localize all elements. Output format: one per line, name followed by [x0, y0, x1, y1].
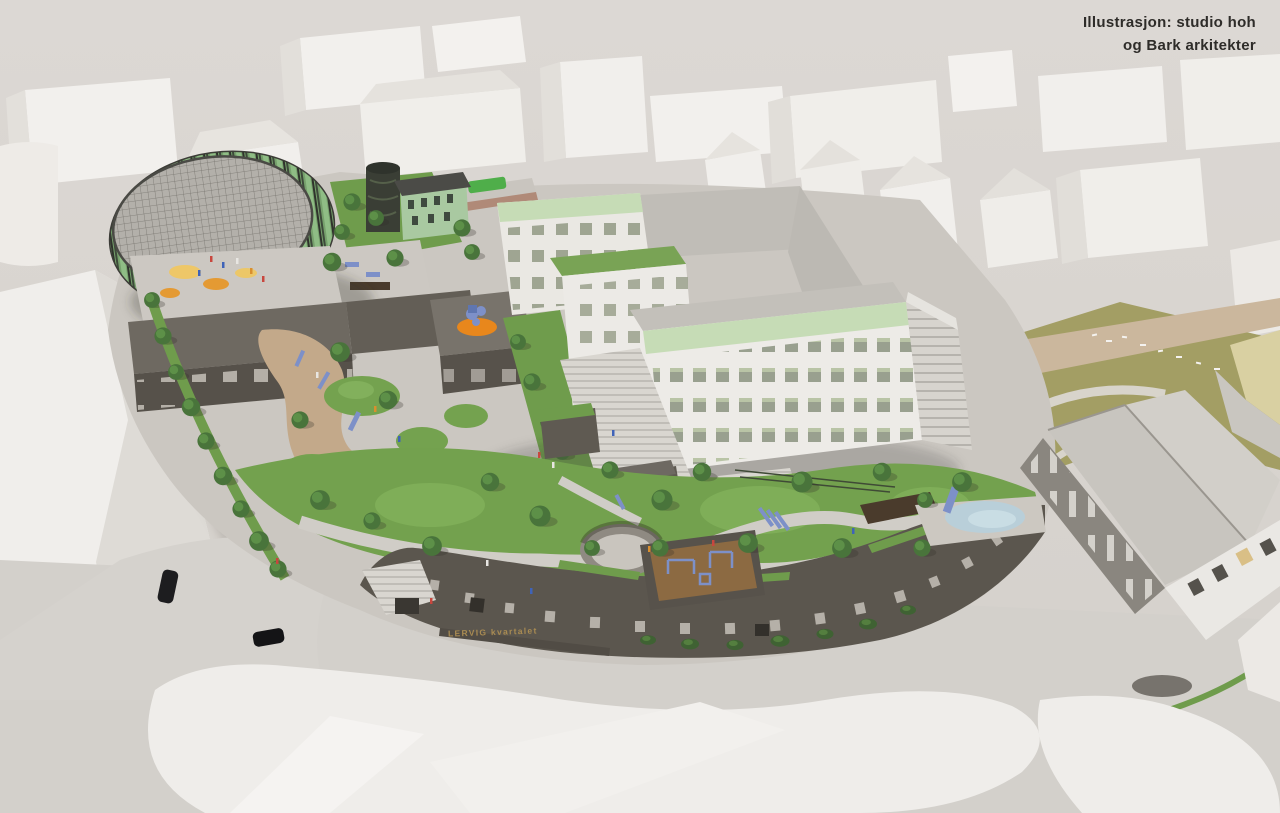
play-circle — [169, 265, 201, 279]
entrance — [469, 597, 485, 613]
entrance — [755, 624, 769, 636]
play-circle — [203, 278, 229, 290]
credit-line-2: og Bark arkitekter — [1083, 35, 1256, 58]
architectural-illustration: Illustrasjon: studio hoh og Bark arkitek… — [0, 0, 1280, 813]
cyclist — [276, 558, 279, 564]
rendering-canvas — [0, 0, 1280, 813]
play-circle — [235, 268, 257, 278]
roundabout-center — [1132, 675, 1192, 697]
play-circle — [160, 288, 180, 298]
credit-line-1: Illustrasjon: studio hoh — [1083, 12, 1256, 35]
credit-caption: Illustrasjon: studio hoh og Bark arkitek… — [1083, 12, 1256, 57]
